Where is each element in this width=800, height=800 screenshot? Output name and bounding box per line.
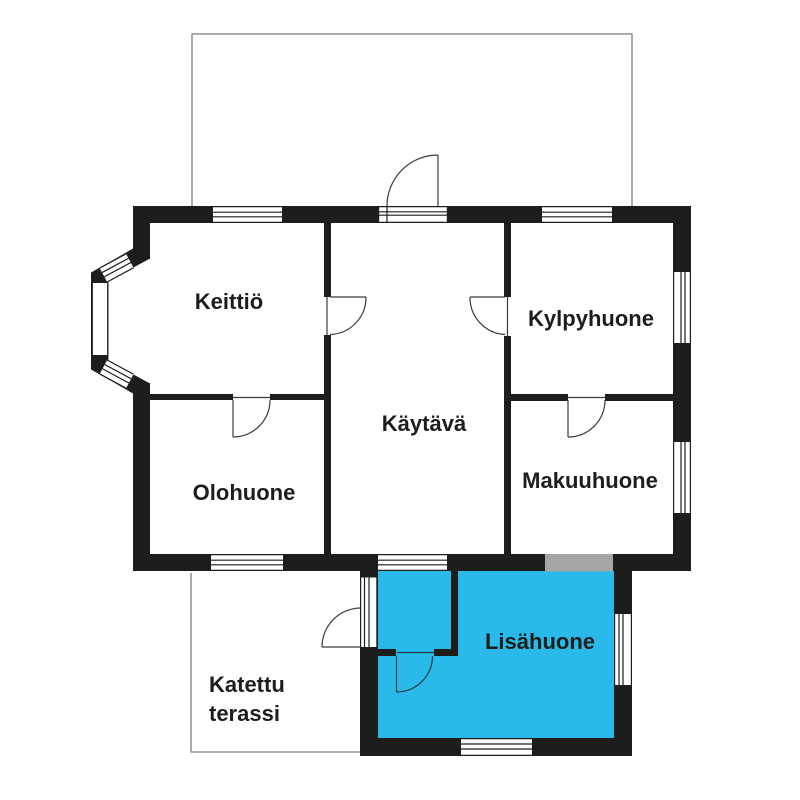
svg-text:Makuuhuone: Makuuhuone	[522, 468, 658, 493]
svg-text:Olohuone: Olohuone	[193, 480, 296, 505]
svg-text:Keittiö: Keittiö	[195, 289, 263, 314]
svg-text:Lisähuone: Lisähuone	[485, 629, 595, 654]
svg-text:terassi: terassi	[209, 701, 280, 726]
svg-text:Katettu: Katettu	[209, 672, 285, 697]
svg-text:Käytävä: Käytävä	[382, 411, 467, 436]
svg-text:Kylpyhuone: Kylpyhuone	[528, 306, 654, 331]
